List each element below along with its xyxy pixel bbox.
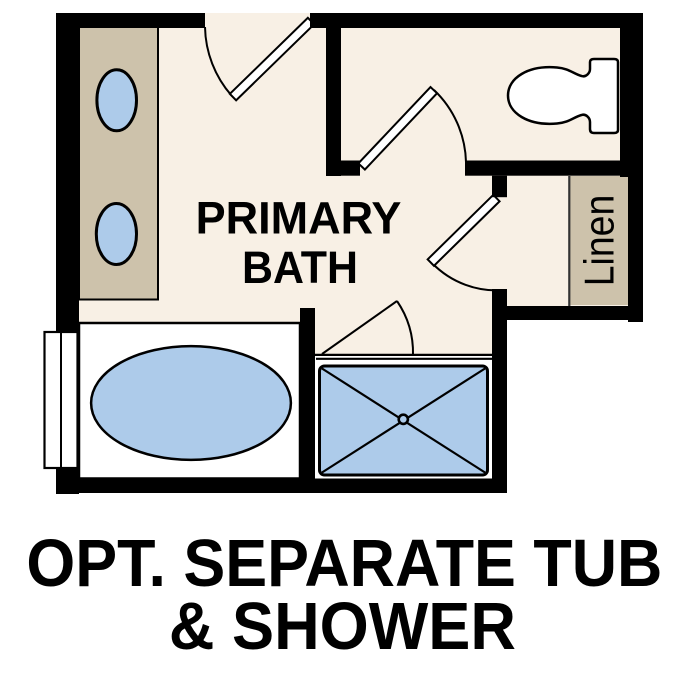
svg-text:Linen: Linen (576, 195, 623, 287)
svg-text:BATH: BATH (242, 242, 358, 293)
svg-text:& SHOWER: & SHOWER (169, 589, 516, 664)
svg-text:PRIMARY: PRIMARY (196, 193, 402, 244)
